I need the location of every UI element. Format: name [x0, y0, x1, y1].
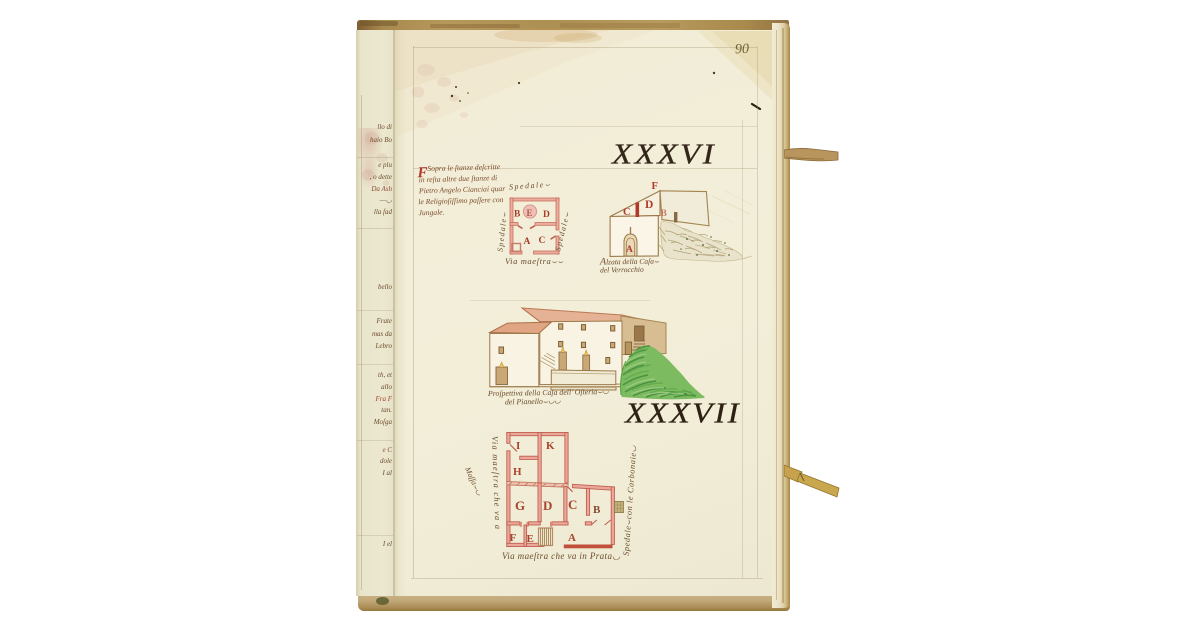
svg-text:B: B — [514, 210, 521, 220]
svg-text:A: A — [626, 245, 633, 255]
svg-text:A: A — [524, 237, 531, 247]
svg-text:B: B — [593, 504, 601, 516]
svg-text:D: D — [645, 199, 653, 211]
svg-text:I: I — [516, 440, 520, 452]
svg-text:K: K — [546, 440, 555, 452]
svg-text:D: D — [543, 498, 552, 513]
svg-text:C: C — [623, 207, 631, 218]
svg-text:H: H — [513, 466, 522, 478]
svg-text:C: C — [539, 236, 546, 246]
svg-text:F: F — [652, 181, 658, 192]
svg-text:G: G — [515, 498, 525, 513]
svg-text:E: E — [527, 533, 534, 545]
svg-text:E: E — [527, 208, 533, 218]
svg-text:D: D — [543, 210, 550, 220]
svg-text:C: C — [568, 497, 577, 512]
svg-text:F: F — [510, 532, 517, 544]
svg-text:B: B — [661, 209, 668, 219]
svg-text:A: A — [568, 532, 576, 544]
